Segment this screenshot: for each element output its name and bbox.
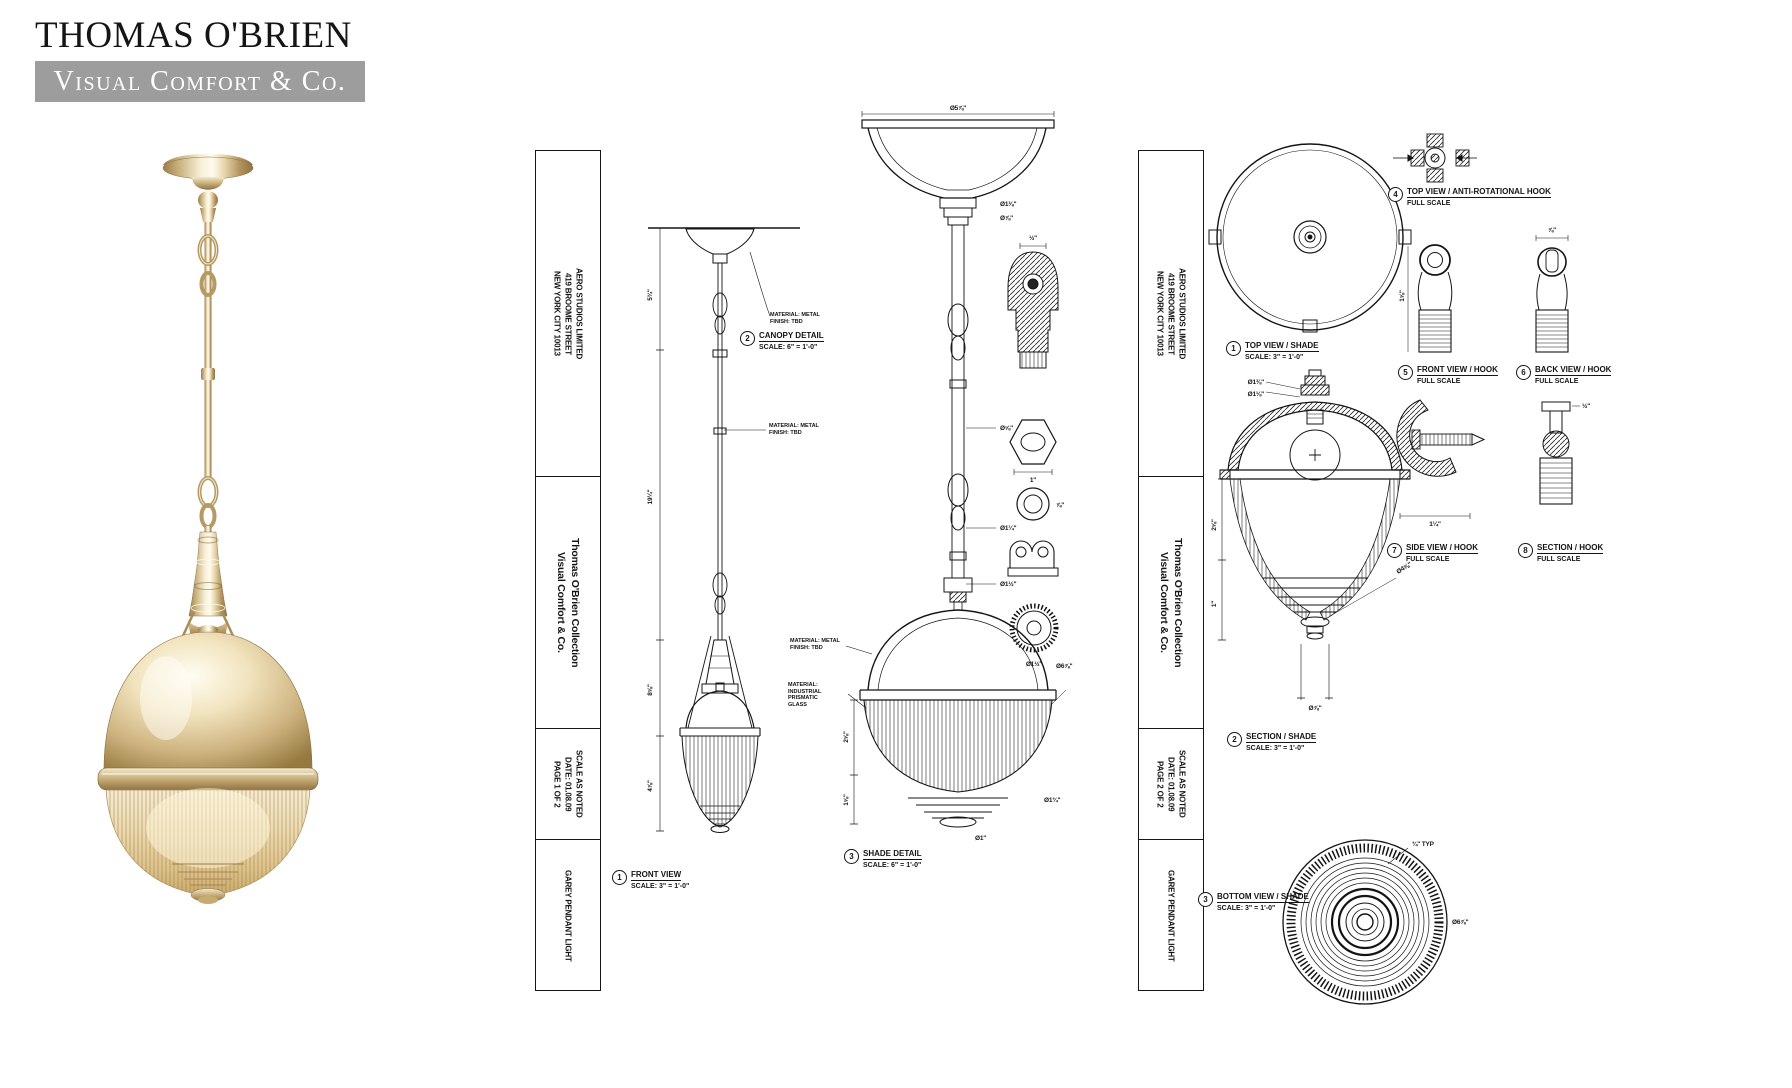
dimension-label: 19¼" [646, 489, 654, 504]
view-label-side-view-hook: 7 SIDE VIEW / HOOK FULL SCALE [1387, 543, 1478, 563]
view-number: 3 [1198, 892, 1213, 907]
view-label-section-shade: 2 SECTION / SHADE SCALE: 3" = 1'-0" [1227, 732, 1316, 752]
dimension-label: Ø⅝" [1000, 425, 1013, 432]
title-block-scale-box: SCALE AS NOTED DATE: 01.08.09 PAGE 2 OF … [1138, 728, 1204, 841]
product-name: GAREY PENDANT LIGHT [563, 870, 574, 962]
view-scale: SCALE: 3" = 1'-0" [1246, 745, 1304, 752]
dimension-label: Ø1" [975, 835, 986, 842]
view-title: BOTTOM VIEW / SHADE [1217, 892, 1309, 903]
view-number: 1 [612, 870, 627, 885]
dimension-label: 1" [1211, 601, 1218, 607]
view-scale: SCALE: 3" = 1'-0" [1217, 905, 1275, 912]
page-note: PAGE 2 OF 2 [1155, 750, 1166, 818]
view-label-back-view-hook: 6 BACK VIEW / HOOK FULL SCALE [1516, 365, 1611, 385]
dimension-label: 1¼" [1429, 520, 1441, 528]
material-note: MATERIAL: METALFINISH: TBD [790, 638, 840, 651]
view-title: SIDE VIEW / HOOK [1406, 543, 1478, 554]
view-scale: SCALE: 3" = 1'-0" [1245, 354, 1303, 361]
view-label-shade-detail: 3 SHADE DETAIL SCALE: 6" = 1'-0" [844, 849, 922, 869]
company-address: 419 BROOME STREET [563, 268, 574, 359]
dimension-label: Ø1½" [1000, 580, 1016, 588]
sheet1-title-block: AERO STUDIOS LIMITED 419 BROOME STREET N… [535, 150, 601, 991]
view-scale: FULL SCALE [1537, 556, 1580, 563]
dimension-label: Ø4⅝" [1395, 561, 1413, 576]
dimension-label: 1" [1030, 477, 1036, 484]
dimension-label: ⅞" [1548, 227, 1556, 234]
view-number: 5 [1398, 365, 1413, 380]
collection-name: Thomas O'Brien Collection [568, 538, 582, 667]
brand-name: Visual Comfort & Co. [554, 538, 568, 667]
material-note: MATERIAL:INDUSTRIAL PRISMATICGLASS [788, 682, 821, 708]
view-title: FRONT VIEW [631, 870, 681, 881]
brand-logo: THOMAS O'BRIEN Visual Comfort & Co. [35, 14, 365, 102]
view-scale: SCALE: 3" = 1'-0" [631, 883, 689, 890]
dimension-label: 1⅝" [843, 794, 850, 806]
top-view-shade-drawing [1209, 144, 1411, 332]
dimension-label: 1⅝" [1399, 290, 1406, 302]
view-label-front-view: 1 FRONT VIEW SCALE: 3" = 1'-0" [612, 870, 689, 890]
dimension-label: 2⅝" [843, 731, 850, 743]
view-number: 2 [1227, 732, 1242, 747]
shade-detail-drawing [846, 610, 1066, 827]
dimension-label: 8⅝" [647, 684, 654, 696]
date-note: DATE: 01.08.09 [563, 750, 574, 818]
page-note: PAGE 1 OF 2 [552, 750, 563, 818]
dimension-label: ¾" TYP [1412, 840, 1435, 848]
photo-glass-shade [106, 788, 310, 904]
dimension-label: ⅞" [1056, 502, 1064, 509]
view-number: 6 [1516, 365, 1531, 380]
dimension-label: Ø1½" [1026, 660, 1042, 668]
dimension-label: Ø1¼" [1000, 524, 1016, 532]
view-title: SECTION / SHADE [1246, 732, 1316, 743]
company-city: NEW YORK CITY 10013 [552, 268, 563, 359]
company-address: 419 BROOME STREET [1166, 268, 1177, 359]
material-note: MATERIAL: METALFINISH: TBD [769, 423, 819, 436]
dimension-label: ½" [1582, 402, 1590, 410]
view-label-canopy-detail: 2 CANOPY DETAIL SCALE: 6" = 1'-0" [740, 331, 824, 351]
view-scale: FULL SCALE [1406, 556, 1449, 563]
date-note: DATE: 01.08.09 [1166, 750, 1177, 818]
logo-title: THOMAS O'BRIEN [35, 14, 365, 57]
brand-name: Visual Comfort & Co. [1157, 538, 1171, 667]
product-name: GAREY PENDANT LIGHT [1166, 870, 1177, 962]
collection-name: Thomas O'Brien Collection [1171, 538, 1185, 667]
sheet2-title-block: AERO STUDIOS LIMITED 419 BROOME STREET N… [1138, 150, 1204, 991]
view-label-bottom-view-shade: 3 BOTTOM VIEW / SHADE SCALE: 3" = 1'-0" [1198, 892, 1309, 912]
title-block-company-box: AERO STUDIOS LIMITED 419 BROOME STREET N… [1138, 150, 1204, 477]
dimension-label: Ø1⅜" [1248, 379, 1264, 386]
view-label-front-view-hook: 5 FRONT VIEW / HOOK FULL SCALE [1398, 365, 1498, 385]
view-scale: SCALE: 6" = 1'-0" [759, 344, 817, 351]
company-city: NEW YORK CITY 10013 [1155, 268, 1166, 359]
photo-canopy [163, 154, 253, 222]
view-scale: FULL SCALE [1417, 378, 1460, 385]
title-block-collection-box: Thomas O'Brien Collection Visual Comfort… [535, 476, 601, 729]
view-number: 3 [844, 849, 859, 864]
view-title: SECTION / HOOK [1537, 543, 1603, 554]
view-title: TOP VIEW / ANTI-ROTATIONAL HOOK [1407, 187, 1551, 198]
view-scale: FULL SCALE [1535, 378, 1578, 385]
title-block-product-box: GAREY PENDANT LIGHT [535, 839, 601, 991]
spec-sheet-page: THOMAS O'BRIEN Visual Comfort & Co. [0, 0, 1792, 1088]
view-number: 7 [1387, 543, 1402, 558]
dimension-label: 2⅝" [1211, 519, 1218, 531]
dimension-label: Ø1⅜" [1000, 201, 1016, 208]
title-block-product-box: GAREY PENDANT LIGHT [1138, 839, 1204, 991]
view-title: FRONT VIEW / HOOK [1417, 365, 1498, 376]
view-number: 2 [740, 331, 755, 346]
dimension-label: Ø5⅞" [950, 105, 966, 112]
view-number: 4 [1388, 187, 1403, 202]
dimension-label: Ø6⅞" [1056, 663, 1072, 670]
part-details-column [1008, 243, 1058, 650]
section-shade-drawing [1218, 370, 1410, 700]
company-name: AERO STUDIOS LIMITED [1177, 268, 1188, 359]
material-note: MATERIAL: METALFINISH: TBD [770, 312, 820, 325]
view-title: TOP VIEW / SHADE [1245, 341, 1319, 352]
dimension-label: Ø6⅞" [1452, 919, 1468, 926]
title-block-scale-box: SCALE AS NOTED DATE: 01.08.09 PAGE 1 OF … [535, 728, 601, 841]
view-scale: SCALE: 6" = 1'-0" [863, 862, 921, 869]
title-block-collection-box: Thomas O'Brien Collection Visual Comfort… [1138, 476, 1204, 729]
bottom-view-shade-drawing [1283, 840, 1447, 1004]
dimension-label: Ø⅞" [1000, 215, 1013, 222]
dimension-label: Ø1¾" [1044, 796, 1060, 804]
product-photo [88, 138, 332, 908]
dimension-label: Ø1⅛" [1248, 391, 1264, 398]
dimension-label: ½" [1029, 234, 1037, 242]
title-block-company-box: AERO STUDIOS LIMITED 419 BROOME STREET N… [535, 150, 601, 477]
photo-dome [98, 625, 318, 790]
view-scale: FULL SCALE [1407, 200, 1450, 207]
dimension-label: Ø⅞" [1309, 705, 1322, 712]
view-number: 1 [1226, 341, 1241, 356]
view-label-anti-rotational-hook: 4 TOP VIEW / ANTI-ROTATIONAL HOOK FULL S… [1388, 187, 1551, 207]
dimension-label: 5¾" [646, 289, 654, 301]
view-label-section-hook: 8 SECTION / HOOK FULL SCALE [1518, 543, 1603, 563]
photo-stem [200, 222, 217, 532]
scale-note: SCALE AS NOTED [574, 750, 585, 818]
view-title: CANOPY DETAIL [759, 331, 824, 342]
logo-banner: Visual Comfort & Co. [35, 61, 365, 102]
view-title: BACK VIEW / HOOK [1535, 365, 1611, 376]
company-name: AERO STUDIOS LIMITED [574, 268, 585, 359]
view-label-top-view-shade: 1 TOP VIEW / SHADE SCALE: 3" = 1'-0" [1226, 341, 1319, 361]
view-number: 8 [1518, 543, 1533, 558]
scale-note: SCALE AS NOTED [1177, 750, 1188, 818]
dimension-label: 4⅞" [647, 780, 654, 792]
view-title: SHADE DETAIL [863, 849, 922, 860]
